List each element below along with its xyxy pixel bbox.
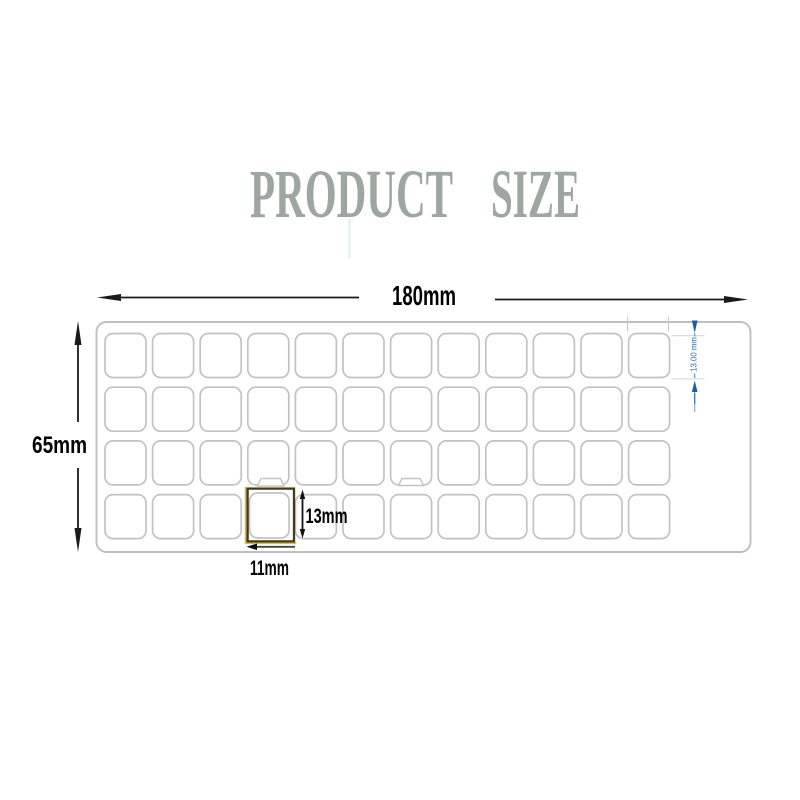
svg-text:PRODUCT: PRODUCT [250, 156, 453, 232]
svg-text:65mm: 65mm [32, 432, 87, 459]
svg-text:SIZE: SIZE [491, 156, 580, 232]
svg-text:13.00 mm: 13.00 mm [690, 337, 699, 372]
svg-text:180mm: 180mm [392, 280, 456, 311]
svg-text:13mm: 13mm [306, 504, 348, 528]
svg-text:11mm: 11mm [250, 557, 289, 580]
